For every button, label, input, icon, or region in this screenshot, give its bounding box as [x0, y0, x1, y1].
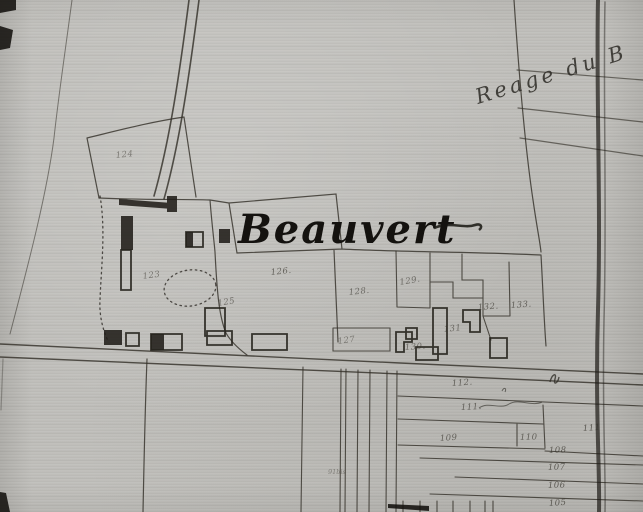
main-road-lines [0, 344, 643, 385]
scan-crease-line-secondary [603, 2, 605, 512]
parcel-label-131: 131 [443, 323, 462, 335]
tick-mark [550, 375, 559, 383]
parcel-label-111-left: 111. [461, 402, 482, 413]
parcel-label-124: 124 [115, 149, 134, 161]
parcel-number-labels: 124 123 125 126. 128. 129. 132. 133. 131… [115, 149, 601, 509]
cadastral-map-scan: Beauvert Reage du B 124 123 125 126. 128… [0, 0, 643, 512]
parcel-label-109: 109 [440, 433, 458, 444]
parcel-label-112: 112. [452, 378, 474, 389]
parcel-label-105: 105 [549, 498, 567, 509]
parcel-label-106: 106 [548, 480, 566, 491]
scan-crease-line [597, 0, 599, 512]
dotted-boundaries [100, 196, 218, 341]
inner-parcel-lines [333, 251, 510, 351]
diagonal-field-line [10, 0, 72, 334]
parcel-label-110: 110 [520, 432, 538, 443]
strip-lines-bottom-right [398, 396, 643, 512]
faint-edge-line [1, 359, 3, 410]
map-canvas: Beauvert Reage du B 124 123 125 126. 128… [0, 0, 643, 512]
road-name-label: Reage du B [471, 40, 629, 109]
parcel-label-111-right: 111 [583, 423, 601, 434]
strip-lines-bottom-middle [301, 367, 397, 512]
small-tick [502, 388, 506, 392]
parcel-label-128: 128. [348, 286, 370, 298]
place-name-label: Beauvert [237, 206, 457, 253]
parcel-label-108: 108 [549, 445, 567, 456]
cursive-note-squiggle [479, 402, 542, 408]
parcel-label-132: 132. [478, 302, 500, 313]
parcel-label-133: 133. [511, 300, 533, 311]
scan-edge-marks [0, 0, 429, 512]
dotted-enclosure-ellipse [162, 267, 219, 310]
parcel-label-125: 125 [217, 296, 236, 309]
village-block-outline [99, 0, 546, 355]
parcel-label-129: 129. [399, 274, 421, 287]
dotted-path-line [100, 196, 108, 341]
parcel-label-107: 107 [548, 462, 566, 473]
parcel-label-130: 130. [405, 342, 427, 353]
strip-note-label: 91bis [328, 468, 347, 476]
parcel-label-127: 127 [337, 335, 356, 347]
parcel-label-123: 123 [142, 270, 161, 282]
parcel-label-126: 126. [270, 266, 292, 278]
field-divider-left [143, 359, 147, 512]
